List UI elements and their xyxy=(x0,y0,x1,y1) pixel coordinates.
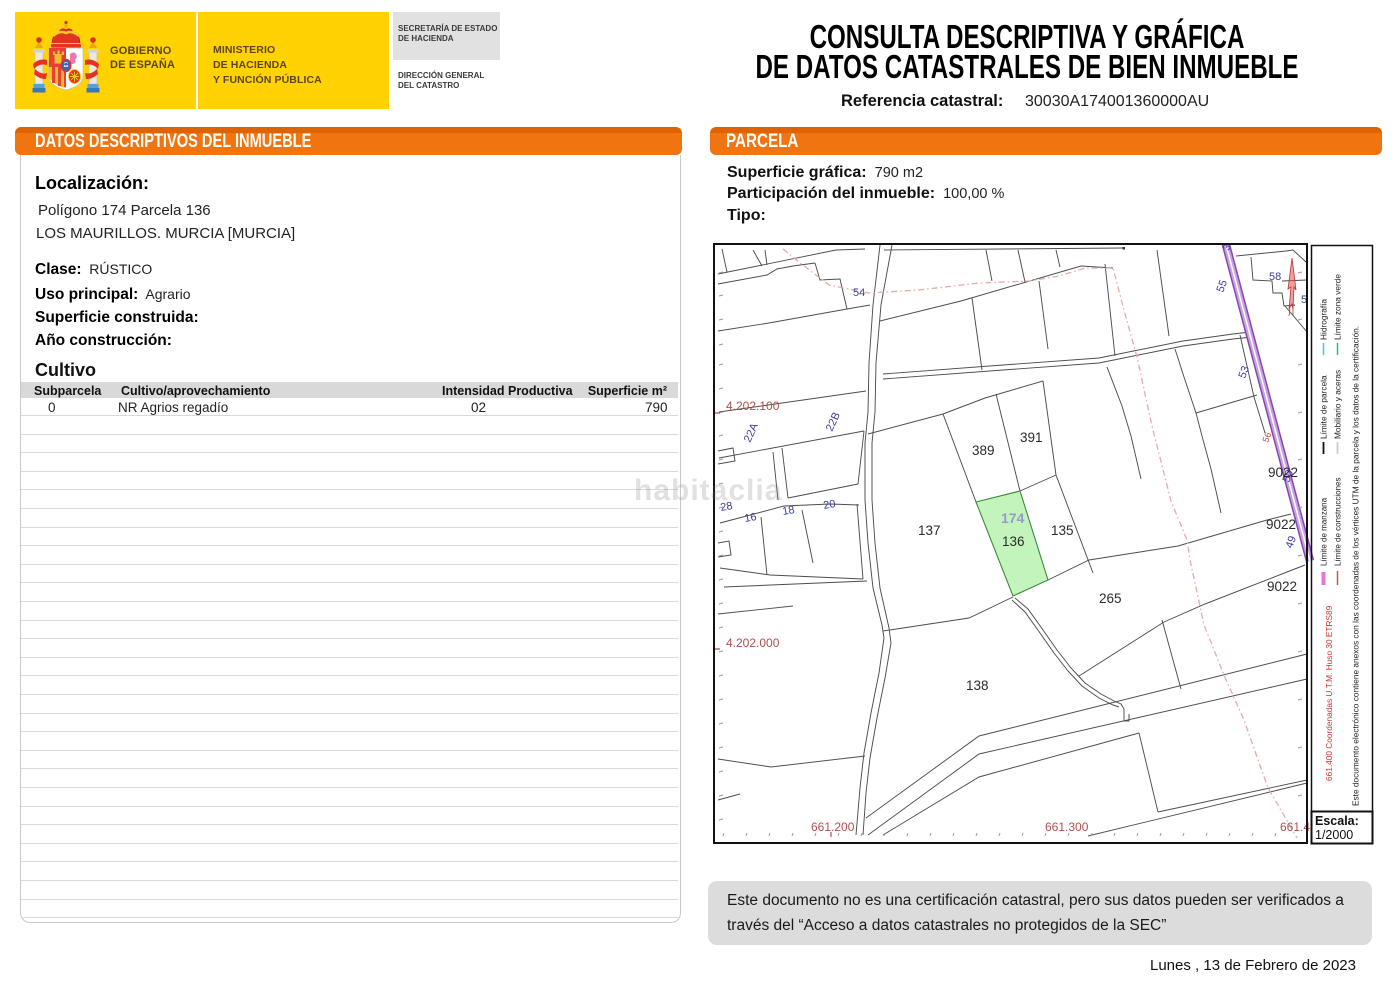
svg-text:Este documento electrónico con: Este documento electrónico contiene anex… xyxy=(1351,326,1361,806)
svg-text:661.400 Coordenadas U.T.M. Hus: 661.400 Coordenadas U.T.M. Huso 30 ETRS8… xyxy=(1324,605,1334,781)
svg-text:4.202.100: 4.202.100 xyxy=(726,399,780,413)
svg-text:54: 54 xyxy=(853,287,865,299)
svg-text:Hidrografía: Hidrografía xyxy=(1319,299,1329,340)
svg-text:Mobiliario y aceras: Mobiliario y aceras xyxy=(1333,370,1343,439)
svg-text:9022: 9022 xyxy=(1268,465,1298,480)
svg-text:20: 20 xyxy=(822,498,836,512)
svg-text:9022: 9022 xyxy=(1267,579,1297,594)
svg-text:136: 136 xyxy=(1002,534,1025,549)
svg-text:16: 16 xyxy=(743,511,757,525)
svg-text:18: 18 xyxy=(781,504,795,518)
svg-text:174: 174 xyxy=(1001,510,1025,526)
svg-text:Escala:: Escala: xyxy=(1315,814,1359,828)
svg-text:1/2000: 1/2000 xyxy=(1315,828,1353,842)
svg-text:49: 49 xyxy=(1284,534,1299,550)
svg-text:Límite de construcciones: Límite de construcciones xyxy=(1334,478,1343,567)
svg-text:137: 137 xyxy=(918,523,941,538)
svg-text:56: 56 xyxy=(1260,431,1273,444)
svg-text:265: 265 xyxy=(1099,591,1122,606)
svg-text:661.4: 661.4 xyxy=(1280,820,1310,834)
svg-text:661.200: 661.200 xyxy=(811,820,855,834)
svg-text:391: 391 xyxy=(1020,430,1043,445)
svg-text:389: 389 xyxy=(972,443,995,458)
svg-text:58: 58 xyxy=(1269,271,1281,283)
svg-text:4.202.000: 4.202.000 xyxy=(726,636,780,650)
svg-text:9022: 9022 xyxy=(1266,517,1296,532)
svg-text:55: 55 xyxy=(1215,278,1230,294)
svg-text:22A: 22A xyxy=(742,421,761,444)
svg-text:Límite zona verde: Límite zona verde xyxy=(1333,274,1343,340)
svg-text:661.300: 661.300 xyxy=(1045,820,1089,834)
svg-text:Límite de parcela: Límite de parcela xyxy=(1319,375,1329,439)
svg-text:22B: 22B xyxy=(824,410,843,433)
svg-text:138: 138 xyxy=(966,678,989,693)
svg-text:Límite de manzana: Límite de manzana xyxy=(1320,497,1329,566)
svg-text:135: 135 xyxy=(1051,523,1074,538)
